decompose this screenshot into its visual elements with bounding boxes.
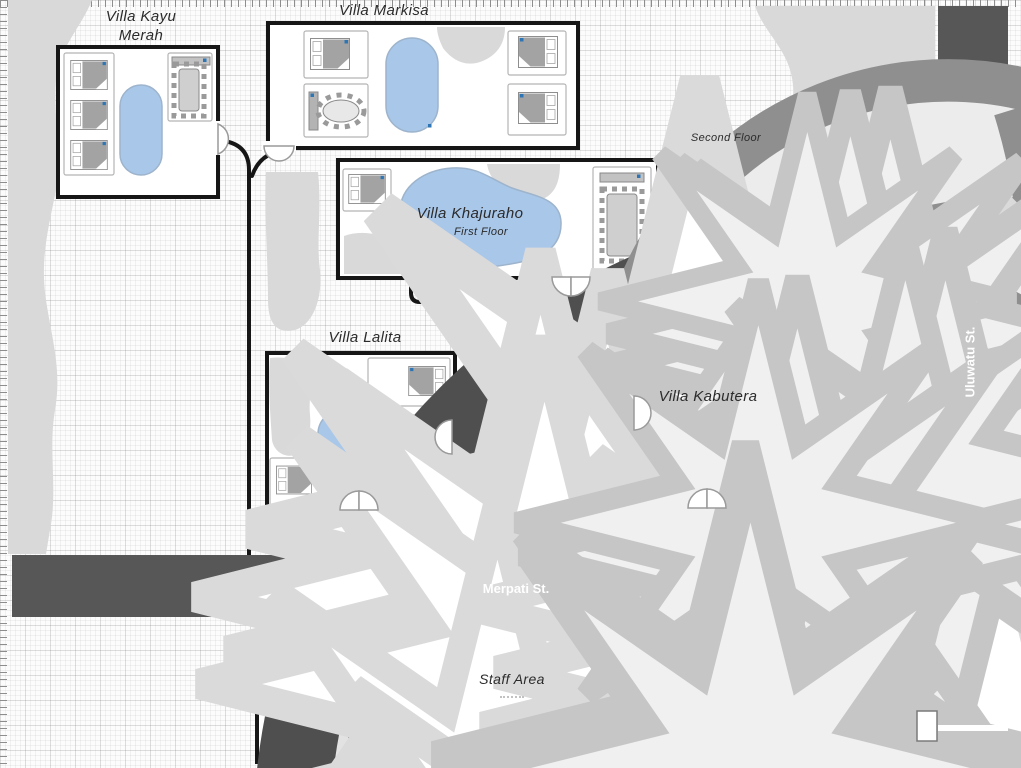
dining-table-icon [607,194,637,256]
villa-khajuraho-label: Villa Khajuraho [417,205,524,222]
pool-kayu-merah [120,85,162,175]
path-kayu-merah [224,141,249,557]
bed-icon [71,60,108,89]
bed-icon [519,37,558,68]
second-floor-label: Second Floor [691,132,761,144]
dining-table-icon [323,100,359,122]
crossing-line [938,725,1008,731]
gate-marker [917,711,937,741]
door-arc [264,146,294,161]
villa-kabutera-label: Villa Kabutera [659,388,758,405]
site-plan-canvas: Villa Kayu Merah Villa Markisa Villa Kha… [0,0,1021,768]
door-arc [218,124,228,154]
cabinet-icon [309,92,318,130]
villa-markisa-label: Villa Markisa [339,2,429,19]
bed-icon [71,140,108,169]
bed-icon [349,174,386,203]
bed-icon [71,100,108,129]
garden-bed-mid [265,172,320,331]
villa-kayu-merah-label-line2: Merah [119,27,164,44]
villa-khajuraho-sublabel: First Floor [454,226,508,238]
villa-lalita-label: Villa Lalita [329,329,402,346]
uluwatu-street-label: Uluwatu St. [963,327,978,398]
staff-area-dashes [500,696,524,698]
bed-icon [519,93,558,124]
dining-table-icon [179,69,199,111]
merpati-street-label: Merpati St. [483,581,549,596]
staff-area-label: Staff Area [479,671,545,687]
bed-icon [311,39,350,70]
pool-markisa [386,38,438,132]
site-plan-svg [0,0,1021,768]
villa-kayu-merah-label-line1: Villa Kayu [106,8,176,25]
